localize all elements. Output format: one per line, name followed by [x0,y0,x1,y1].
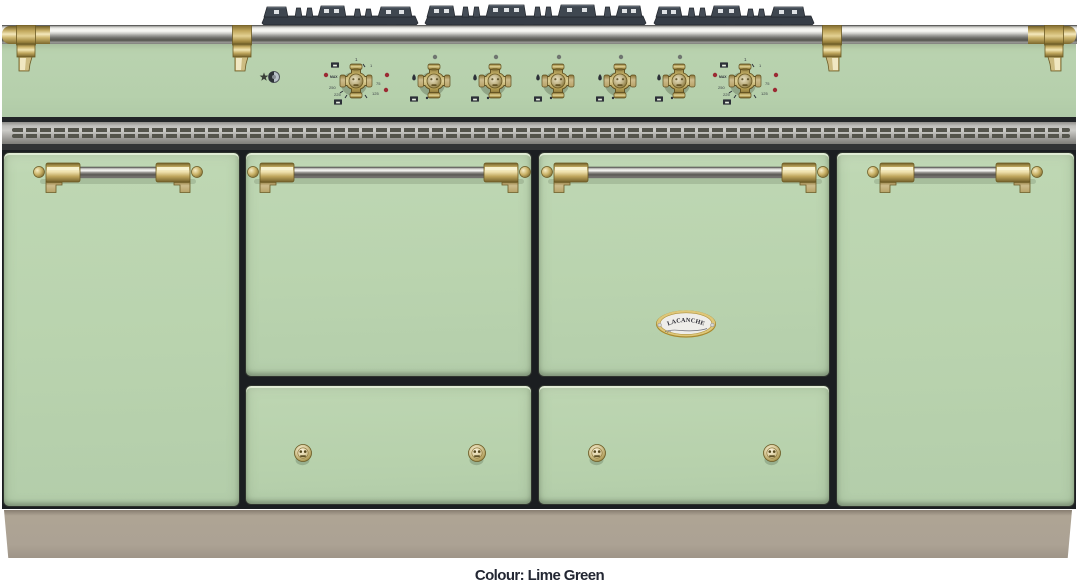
svg-text:1: 1 [355,57,358,62]
svg-text:1: 1 [759,63,762,68]
svg-text:75: 75 [765,81,770,86]
svg-text:125: 125 [372,91,379,96]
svg-text:MAX: MAX [330,75,338,79]
svg-text:250: 250 [329,85,336,90]
svg-text:1: 1 [370,63,373,68]
svg-text:1: 1 [744,57,747,62]
svg-text:75: 75 [376,81,381,86]
svg-text:250: 250 [718,85,725,90]
svg-text:MAX: MAX [719,75,727,79]
svg-text:125: 125 [761,91,768,96]
